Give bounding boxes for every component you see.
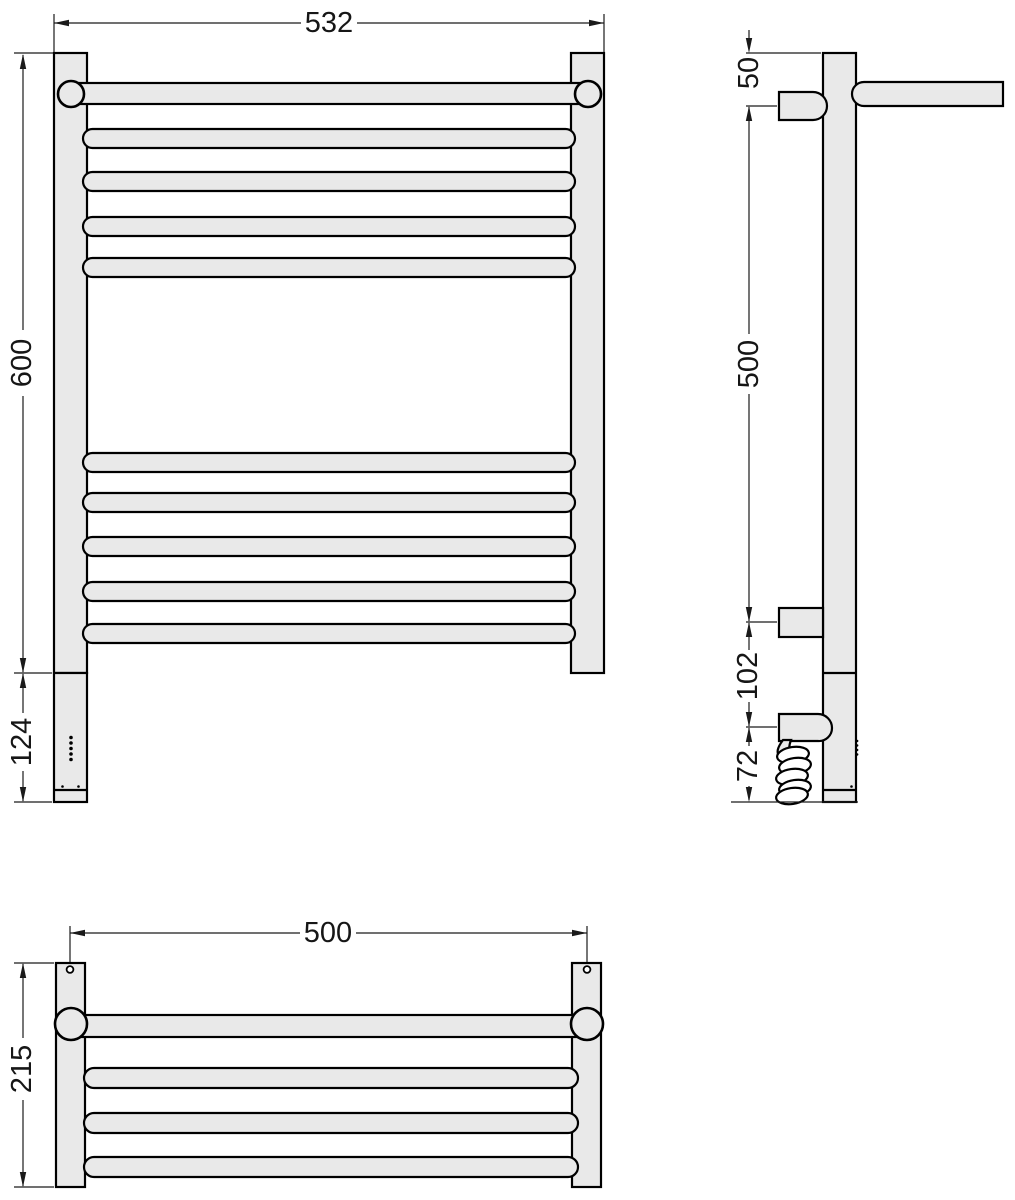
front-right-post <box>571 53 604 673</box>
rung <box>84 1068 578 1088</box>
top-right-collar <box>571 1008 603 1040</box>
rung <box>83 129 575 148</box>
rung <box>83 537 575 556</box>
mounting-hole <box>584 966 591 973</box>
dimension-arrowheads <box>20 20 752 1187</box>
side-shelf-bar <box>852 82 1003 106</box>
dim-label-bracket-spacing: 500 <box>733 340 765 388</box>
rung <box>83 217 575 236</box>
cable-coil <box>775 740 812 806</box>
side-view <box>775 53 1003 806</box>
drawing-svg: 532 600 124 50 500 102 72 500 215 <box>0 0 1015 1200</box>
rung <box>83 493 575 512</box>
dim-label-mounting-spacing: 500 <box>304 917 352 949</box>
front-view <box>54 53 604 802</box>
rung <box>84 1113 578 1133</box>
upper-wall-bracket <box>779 92 827 120</box>
lower-wall-bracket <box>779 608 823 637</box>
front-left-post <box>54 53 87 673</box>
front-left-collar <box>58 81 84 107</box>
top-left-collar <box>55 1008 87 1040</box>
rung <box>83 624 575 643</box>
top-left-bracket <box>56 963 85 1187</box>
dim-label-bracket-to-cable: 102 <box>732 652 764 700</box>
rung <box>83 258 575 277</box>
rung <box>83 582 575 601</box>
rung <box>83 172 575 191</box>
towel-rail-technical-drawing: 532 600 124 50 500 102 72 500 215 <box>0 0 1015 1200</box>
top-shelf-bar <box>71 1015 587 1037</box>
mounting-hole <box>67 966 74 973</box>
rung <box>84 1157 578 1177</box>
front-shelf-bar <box>71 83 588 104</box>
cable-gland <box>779 714 832 741</box>
side-post <box>823 53 856 802</box>
dim-label-front-width: 532 <box>305 7 353 39</box>
dim-label-top-offset: 50 <box>733 57 765 89</box>
rung <box>83 453 575 472</box>
dim-label-depth: 215 <box>6 1045 38 1093</box>
top-view <box>55 963 603 1187</box>
front-right-collar <box>575 81 601 107</box>
dim-label-control-unit-height: 124 <box>6 718 38 766</box>
dim-label-front-height: 600 <box>6 339 38 387</box>
dim-label-cable-to-bottom: 72 <box>732 750 764 782</box>
